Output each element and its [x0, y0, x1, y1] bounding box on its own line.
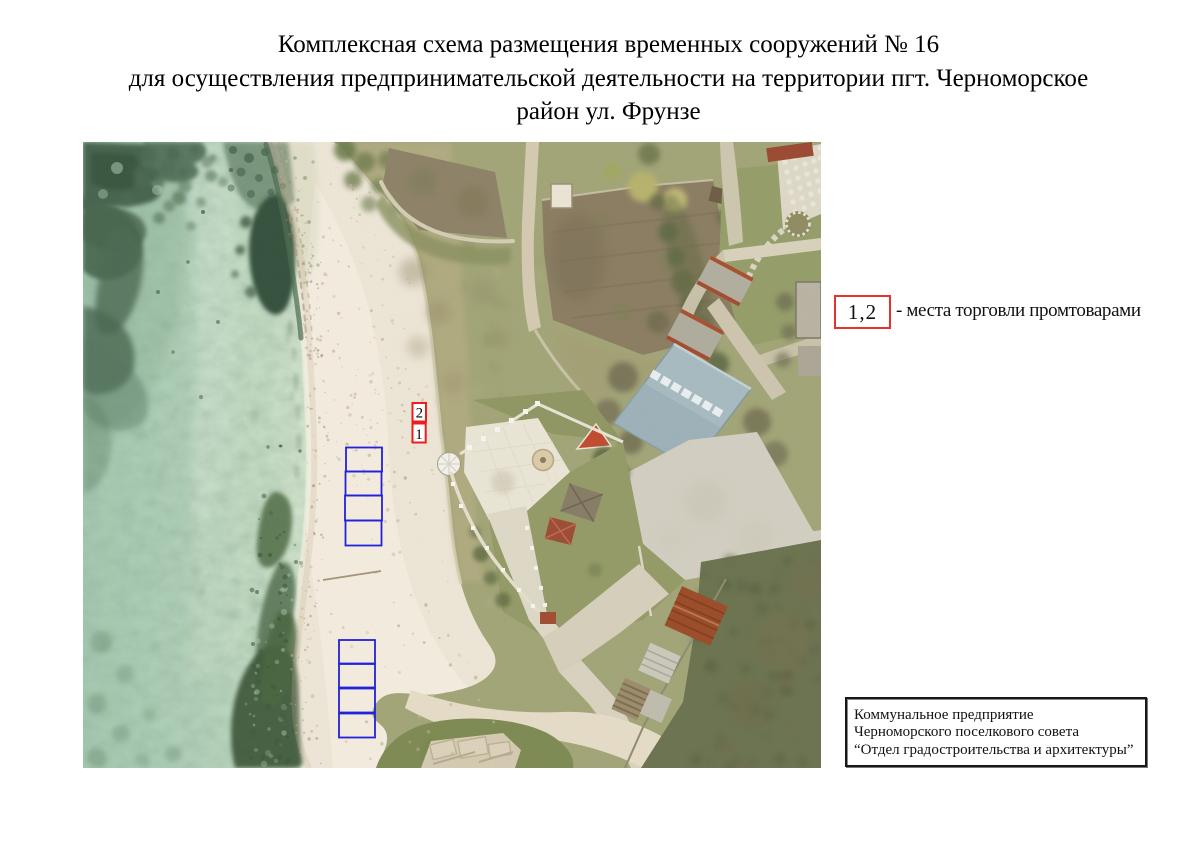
svg-text:1: 1	[415, 427, 422, 443]
svg-text:2: 2	[416, 406, 423, 422]
